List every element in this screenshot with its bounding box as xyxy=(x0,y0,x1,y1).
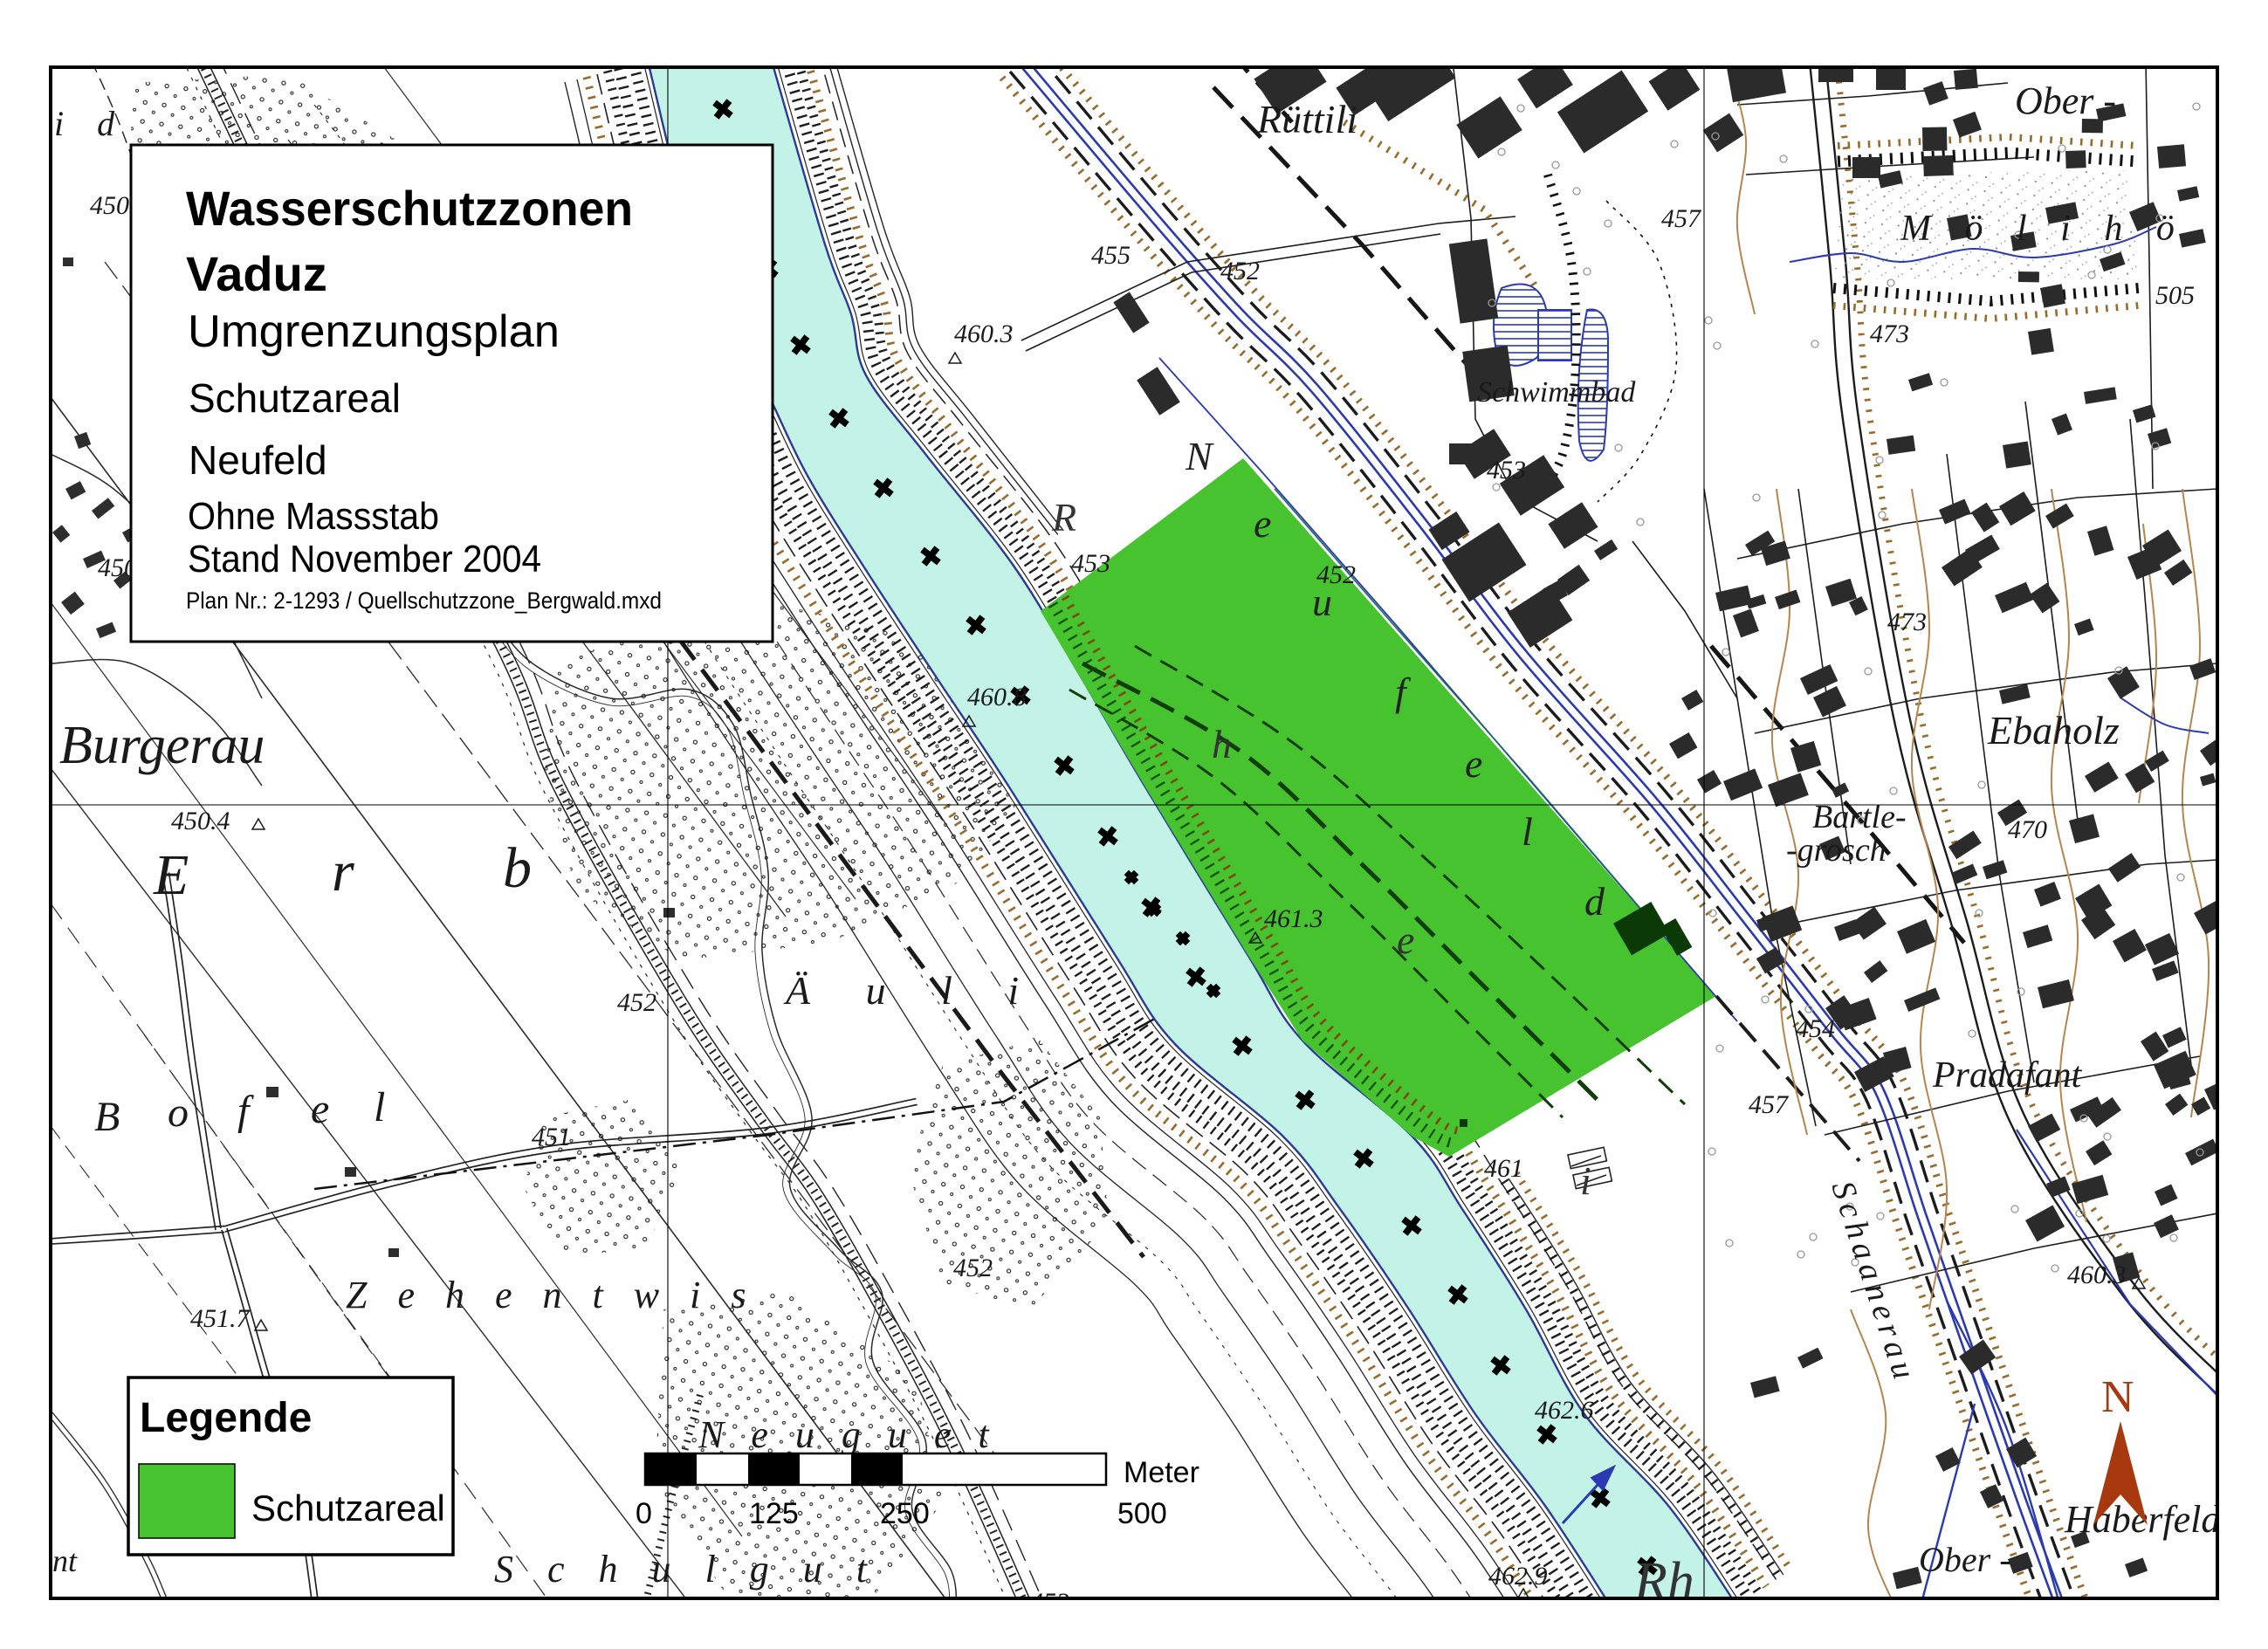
svg-text:Burgerau: Burgerau xyxy=(59,716,265,775)
svg-text:500: 500 xyxy=(1117,1497,1167,1530)
svg-text:R: R xyxy=(1051,495,1076,539)
svg-text:Vaduz: Vaduz xyxy=(186,246,327,301)
svg-text:E: E xyxy=(153,843,189,907)
svg-text:l: l xyxy=(374,1084,385,1130)
svg-text:i: i xyxy=(1580,1158,1591,1203)
svg-text:M ö l i h ö: M ö l i h ö xyxy=(1900,209,2187,249)
svg-text:462.6: 462.6 xyxy=(1535,1396,1594,1425)
svg-text:Pradafant: Pradafant xyxy=(1932,1055,2083,1096)
svg-text:o: o xyxy=(168,1089,189,1136)
svg-text:461: 461 xyxy=(1484,1154,1523,1183)
svg-text:Plan Nr.: 2-1293 / Quellschutz: Plan Nr.: 2-1293 / Quellschutzzone_Bergw… xyxy=(186,587,662,614)
svg-text:Ohne Massstab: Ohne Massstab xyxy=(188,495,439,538)
svg-text:Bartle-: Bartle- xyxy=(1812,799,1907,835)
svg-text:Z e h e n t w i s: Z e h e n t w i s xyxy=(346,1274,756,1316)
svg-text:451: 451 xyxy=(532,1123,571,1151)
svg-text:l: l xyxy=(1522,809,1533,854)
svg-text:Schutzareal: Schutzareal xyxy=(189,375,401,421)
svg-text:457: 457 xyxy=(1661,204,1702,233)
svg-text:250: 250 xyxy=(880,1497,930,1530)
svg-text:454: 454 xyxy=(1796,1014,1835,1043)
svg-text:450: 450 xyxy=(90,191,129,220)
svg-text:473: 473 xyxy=(1887,608,1927,636)
svg-text:r: r xyxy=(332,840,354,904)
svg-text:Ober -: Ober - xyxy=(1919,1540,2011,1579)
svg-text:505: 505 xyxy=(2155,281,2195,310)
svg-text:452: 452 xyxy=(1316,560,1356,589)
svg-text:e: e xyxy=(1397,917,1414,962)
svg-text:460.3: 460.3 xyxy=(2067,1261,2127,1289)
svg-text:Schwimmbad: Schwimmbad xyxy=(1477,376,1636,409)
svg-text:451.7: 451.7 xyxy=(190,1304,251,1333)
svg-text:452: 452 xyxy=(953,1254,993,1282)
svg-text:i d: i d xyxy=(54,104,127,143)
svg-text:Schutzareal: Schutzareal xyxy=(251,1488,445,1529)
svg-text:Legende: Legende xyxy=(140,1395,312,1441)
svg-text:b: b xyxy=(503,836,532,900)
svg-text:125: 125 xyxy=(749,1497,799,1530)
svg-text:460.8: 460.8 xyxy=(967,683,1027,711)
svg-text:Ebaholz: Ebaholz xyxy=(1987,708,2120,752)
svg-text:0: 0 xyxy=(636,1497,652,1530)
svg-text:Rüttili: Rüttili xyxy=(1256,97,1357,141)
svg-text:e: e xyxy=(311,1086,329,1132)
svg-text:Ä u l i: Ä u l i xyxy=(783,968,1041,1013)
svg-text:N: N xyxy=(1185,434,1214,478)
svg-text:453: 453 xyxy=(1071,549,1110,578)
svg-text:457: 457 xyxy=(1749,1090,1790,1119)
svg-text:Ober -: Ober - xyxy=(2015,79,2116,122)
svg-text:461.3: 461.3 xyxy=(1264,904,1323,933)
svg-text:Meter: Meter xyxy=(1124,1456,1199,1489)
svg-text:Neufeld: Neufeld xyxy=(189,437,327,483)
svg-text:Haberfeld: Haberfeld xyxy=(2064,1498,2221,1541)
svg-text:473: 473 xyxy=(1870,319,1909,348)
svg-text:Wasserschutzzonen: Wasserschutzzonen xyxy=(186,181,633,236)
svg-text:h: h xyxy=(1212,722,1232,766)
svg-text:460.3: 460.3 xyxy=(954,319,1014,348)
svg-text:Stand November 2004: Stand November 2004 xyxy=(188,538,541,581)
svg-text:Umgrenzungsplan: Umgrenzungsplan xyxy=(188,306,560,357)
svg-text:S c h u l g u t: S c h u l g u t xyxy=(494,1548,879,1591)
svg-text:e: e xyxy=(1254,501,1271,546)
svg-text:e: e xyxy=(1465,741,1482,786)
svg-text:B: B xyxy=(94,1094,120,1140)
svg-text:455: 455 xyxy=(1091,241,1131,270)
svg-text:450.4: 450.4 xyxy=(171,807,230,835)
svg-text:452: 452 xyxy=(617,988,656,1017)
svg-text:470: 470 xyxy=(2008,815,2047,844)
svg-text:453: 453 xyxy=(1487,456,1526,484)
svg-text:462.9: 462.9 xyxy=(1488,1562,1548,1591)
svg-text:nt: nt xyxy=(52,1543,78,1578)
svg-text:d: d xyxy=(1584,879,1605,924)
svg-text:452: 452 xyxy=(1220,257,1260,285)
svg-text:-grosch: -grosch xyxy=(1786,832,1887,869)
svg-text:N: N xyxy=(2101,1372,2134,1422)
svg-text:N e u g u e t: N e u g u e t xyxy=(698,1413,998,1456)
